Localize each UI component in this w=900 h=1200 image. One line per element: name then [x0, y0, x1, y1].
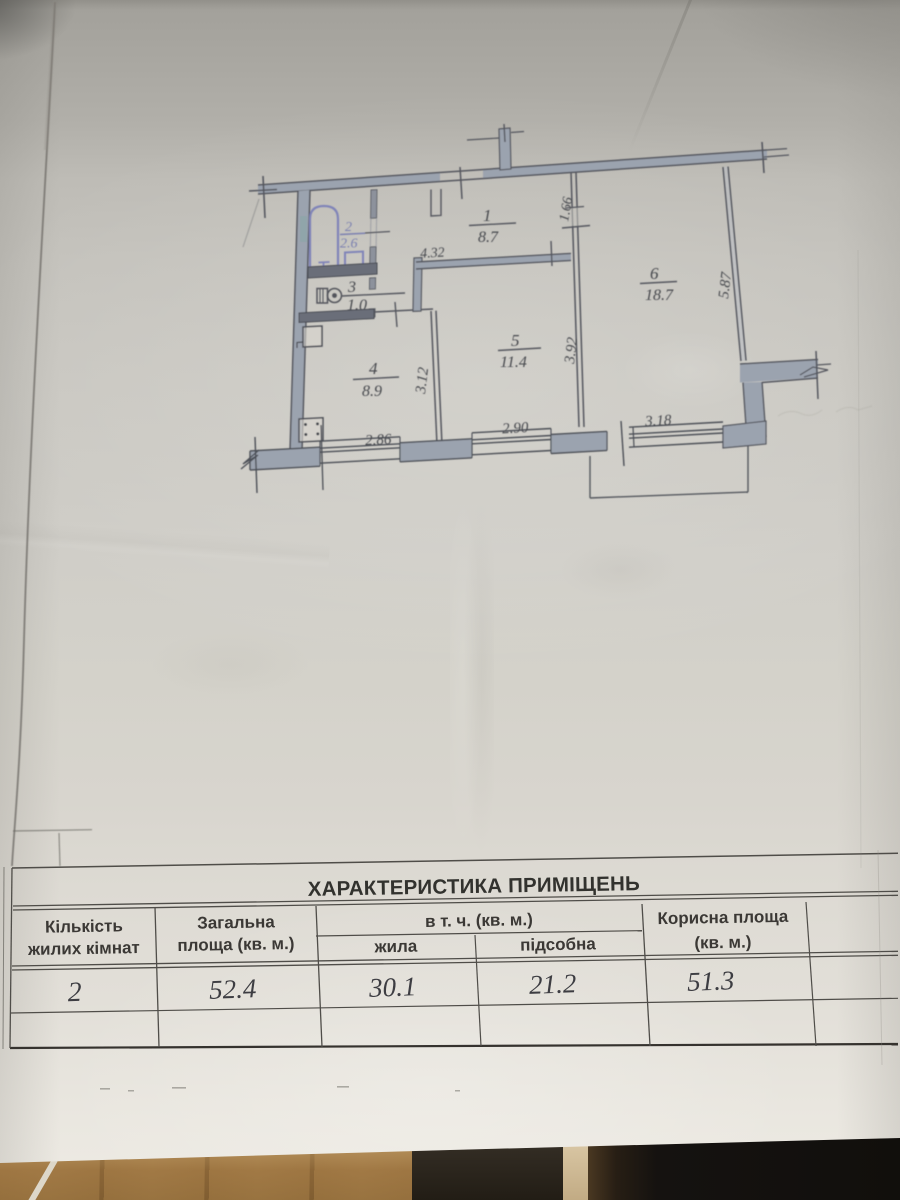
svg-text:3: 3	[347, 279, 356, 296]
svg-text:52.4: 52.4	[209, 973, 257, 1005]
svg-text:3.92: 3.92	[562, 336, 581, 365]
svg-text:30.1: 30.1	[368, 971, 417, 1003]
svg-text:4: 4	[369, 359, 378, 378]
svg-text:5: 5	[511, 331, 520, 350]
svg-text:підсобна: підсобна	[520, 934, 596, 954]
svg-text:2: 2	[345, 220, 352, 235]
svg-text:3.12: 3.12	[413, 366, 432, 395]
svg-text:1: 1	[483, 206, 492, 225]
svg-text:3.18: 3.18	[644, 413, 673, 430]
svg-text:площа (кв. м.): площа (кв. м.)	[177, 934, 294, 955]
svg-text:Кількість: Кількість	[45, 916, 123, 936]
svg-text:51.3: 51.3	[687, 965, 735, 997]
svg-text:жила: жила	[373, 937, 418, 957]
svg-text:жилих кімнат: жилих кімнат	[27, 938, 140, 959]
svg-text:5.87: 5.87	[716, 270, 735, 299]
svg-text:18.7: 18.7	[645, 287, 674, 304]
svg-text:в т. ч. (кв. м.): в т. ч. (кв. м.)	[425, 910, 533, 931]
svg-text:2.6: 2.6	[340, 237, 358, 252]
svg-text:8.9: 8.9	[362, 383, 382, 400]
svg-text:2: 2	[67, 977, 82, 1008]
svg-text:1.66: 1.66	[557, 196, 576, 223]
svg-text:Загальна: Загальна	[197, 912, 275, 932]
svg-text:(кв. м.): (кв. м.)	[694, 933, 751, 953]
svg-text:Корисна площа: Корисна площа	[657, 907, 789, 928]
svg-text:2.86: 2.86	[365, 432, 393, 449]
svg-text:2.90: 2.90	[502, 420, 530, 437]
svg-text:21.2: 21.2	[529, 968, 577, 1000]
svg-text:4.32: 4.32	[420, 246, 445, 262]
svg-text:8.7: 8.7	[478, 229, 499, 246]
svg-text:11.4: 11.4	[500, 354, 527, 371]
svg-text:6: 6	[650, 264, 659, 283]
